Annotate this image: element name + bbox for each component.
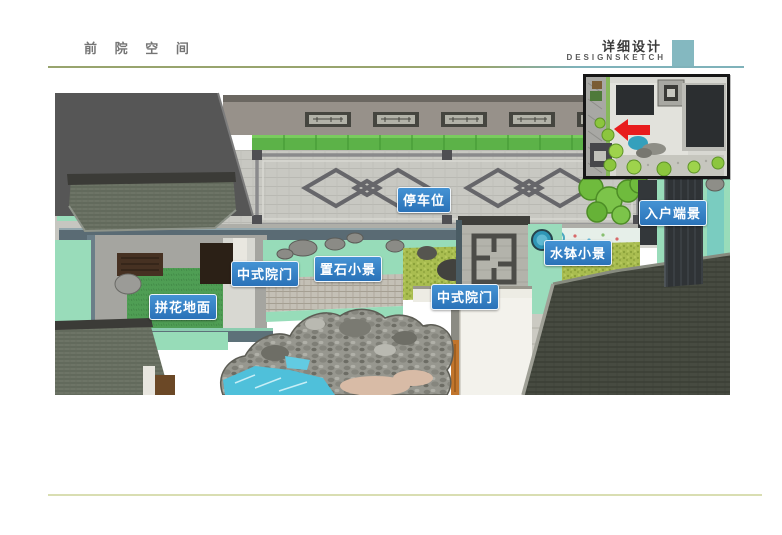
green-tile-band	[252, 135, 640, 150]
wood-door	[155, 375, 175, 395]
gate-doorway	[200, 243, 233, 284]
label-placed-rock-scene: 置石小景	[314, 256, 382, 282]
label-chinese-gate-left: 中式院门	[231, 261, 299, 287]
label-water-basin-scene: 水钵小景	[544, 240, 612, 266]
entry-corridor-roof	[665, 174, 703, 287]
design-sheet: 前 院 空 间 详细设计 DESIGNSKETCH	[0, 0, 782, 535]
header-rule	[48, 66, 744, 68]
footer-rule	[48, 494, 762, 496]
inset-building-right	[686, 85, 724, 147]
overview-inset-svg	[586, 77, 727, 176]
section-subtitle: DESIGNSKETCH	[520, 53, 666, 62]
label-chinese-gate-right: 中式院门	[431, 284, 499, 310]
label-entry-focal-view: 入户端景	[639, 200, 707, 226]
label-mosaic-paving: 拼花地面	[149, 294, 217, 320]
accent-square	[672, 40, 694, 67]
overview-inset-map	[583, 74, 730, 179]
north-wall	[223, 95, 640, 135]
page-title: 前 院 空 间	[84, 38, 196, 57]
garden-rock	[115, 274, 141, 294]
label-parking-space: 停车位	[397, 187, 451, 213]
inset-building-left	[616, 85, 654, 115]
